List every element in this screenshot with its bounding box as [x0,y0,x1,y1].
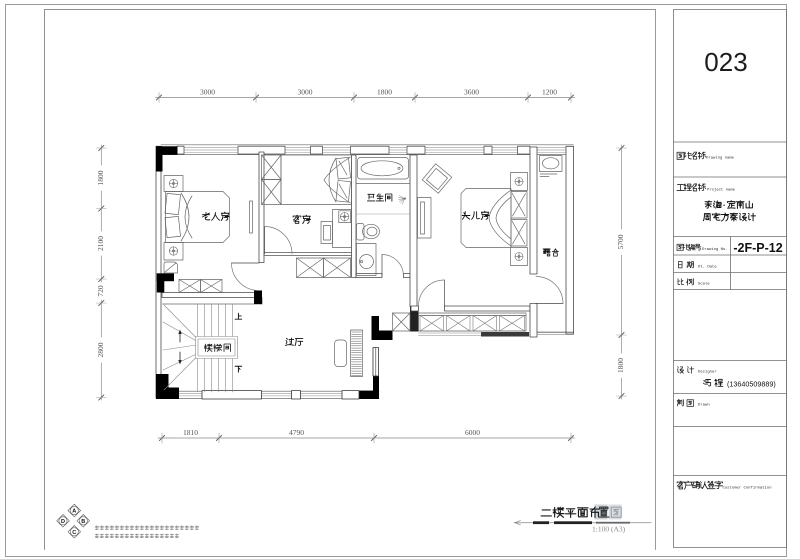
svg-text:1800: 1800 [96,170,105,185]
svg-text:6000: 6000 [465,428,480,437]
svg-text:2100: 2100 [96,236,105,251]
svg-text:3000: 3000 [298,88,313,97]
svg-text:023: 023 [704,47,747,77]
svg-text:Dt. Date: Dt. Date [698,266,717,270]
svg-text:Drawn: Drawn [698,404,710,408]
svg-text:(13640509889): (13640509889) [727,380,776,389]
svg-text:Drawing No.: Drawing No. [702,247,728,252]
svg-text:Project name: Project name [707,188,736,193]
svg-text:Customer Confirmation: Customer Confirmation [723,486,772,491]
svg-text:Scale: Scale [698,282,710,287]
svg-text:B: B [81,519,85,525]
svg-text:5700: 5700 [616,234,625,249]
svg-text:1810: 1810 [183,428,198,437]
svg-text:3600: 3600 [464,88,479,97]
svg-text:1:100 (A3): 1:100 (A3) [592,525,626,534]
svg-text:1800: 1800 [377,88,392,97]
svg-text:-2F-P-12: -2F-P-12 [733,241,782,255]
svg-text:D: D [61,519,65,525]
svg-text:720: 720 [96,285,105,297]
svg-text:1200: 1200 [542,88,557,97]
svg-text:Designer: Designer [698,370,717,375]
svg-text:Drawing name: Drawing name [706,156,735,161]
svg-text:4790: 4790 [289,428,304,437]
svg-text:2800: 2800 [96,342,105,357]
svg-text:3000: 3000 [200,88,215,97]
svg-text:A: A [72,509,76,515]
svg-text:1800: 1800 [616,358,625,373]
svg-text:C: C [72,530,76,536]
